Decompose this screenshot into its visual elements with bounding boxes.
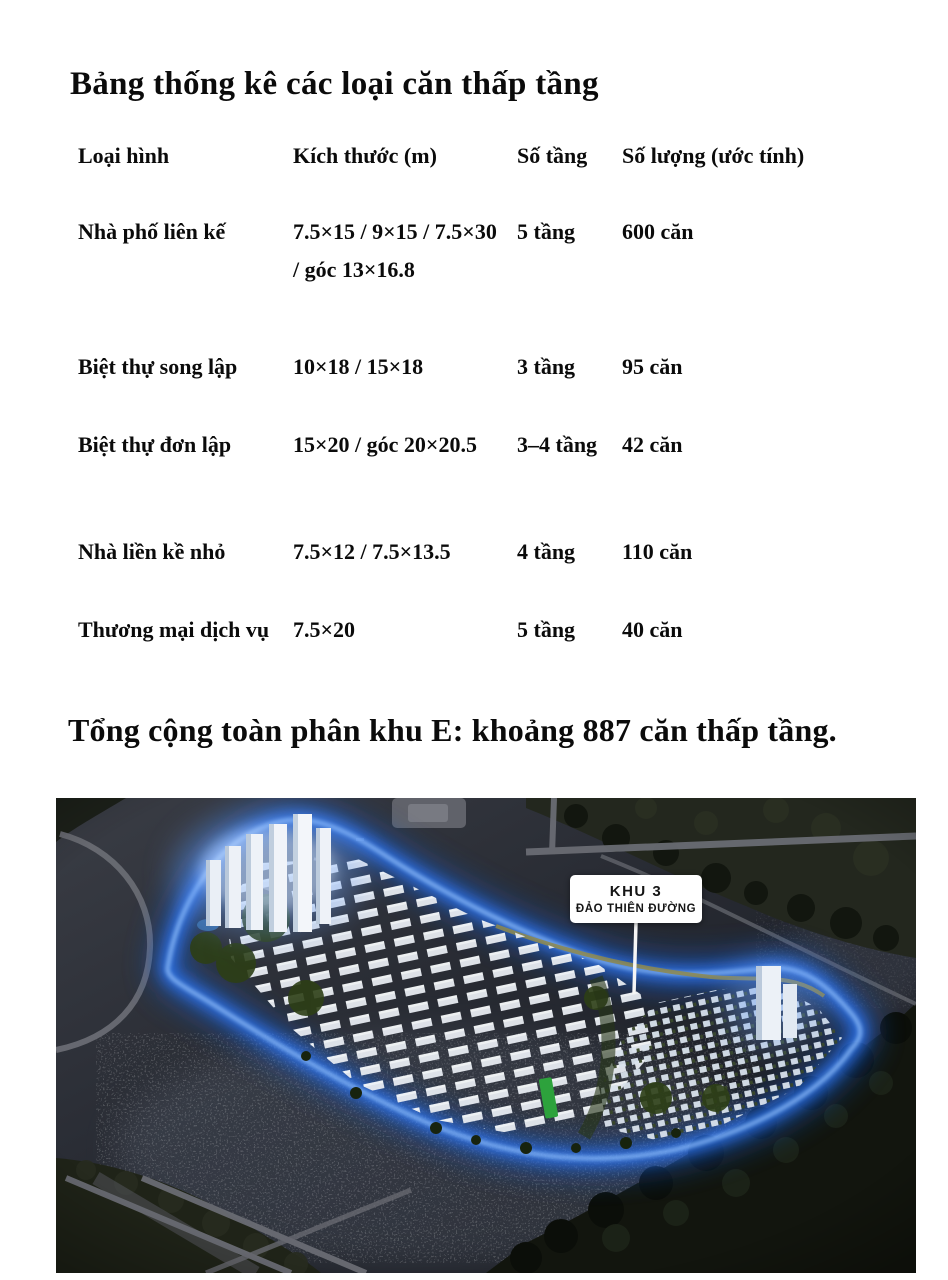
cell-count: 95 căn [622,348,922,386]
cell-count: 42 căn [622,426,922,464]
cell-size: 7.5×15 / 9×15 / 7.5×30 / góc 13×16.8 [293,213,517,289]
cell-type: Biệt thự song lập [78,348,293,386]
cell-size: 15×20 / góc 20×20.5 [293,426,517,464]
cell-count: 600 căn [622,213,922,289]
total-summary: Tổng cộng toàn phân khu E: khoảng 887 că… [68,712,928,749]
cell-floors: 4 tầng [517,533,622,571]
cell-size: 10×18 / 15×18 [293,348,517,386]
column-header-kich-thuoc: Kích thước (m) [293,137,517,175]
cell-type: Nhà liền kề nhỏ [78,533,293,571]
cell-size: 7.5×12 / 7.5×13.5 [293,533,517,571]
khu3-label-line2: ĐẢO THIÊN ĐƯỜNG [576,902,696,916]
cell-floors: 5 tầng [517,213,622,289]
khu3-label: KHU 3 ĐẢO THIÊN ĐƯỜNG [570,875,702,923]
aerial-photo: KHU 3 ĐẢO THIÊN ĐƯỜNG [56,798,916,1273]
cell-count: 110 căn [622,533,922,571]
khu3-label-line1: KHU 3 [610,883,663,900]
aerial-render [56,798,916,1273]
stats-table-header: Loại hình Kích thước (m) Số tầng Số lượn… [78,137,922,175]
column-header-loai-hinh: Loại hình [78,137,293,175]
table-row: Biệt thự đơn lập 15×20 / góc 20×20.5 3–4… [78,426,922,464]
cell-type: Thương mại dịch vụ [78,611,293,649]
cell-size: 7.5×20 [293,611,517,649]
cell-type: Biệt thự đơn lập [78,426,293,464]
table-row: Nhà phố liên kế 7.5×15 / 9×15 / 7.5×30 /… [78,213,922,289]
cell-floors: 5 tầng [517,611,622,649]
cell-count: 40 căn [622,611,922,649]
cell-type: Nhà phố liên kế [78,213,293,289]
table-row: Thương mại dịch vụ 7.5×20 5 tầng 40 căn [78,611,922,649]
table-row: Nhà liền kề nhỏ 7.5×12 / 7.5×13.5 4 tầng… [78,533,922,571]
cell-floors: 3–4 tầng [517,426,622,464]
column-header-so-luong: Số lượng (ước tính) [622,137,922,175]
page-title: Bảng thống kê các loại căn thấp tầng [70,66,599,103]
table-row: Biệt thự song lập 10×18 / 15×18 3 tầng 9… [78,348,922,386]
column-header-so-tang: Số tầng [517,137,622,175]
cell-floors: 3 tầng [517,348,622,386]
vignette [56,798,916,1273]
